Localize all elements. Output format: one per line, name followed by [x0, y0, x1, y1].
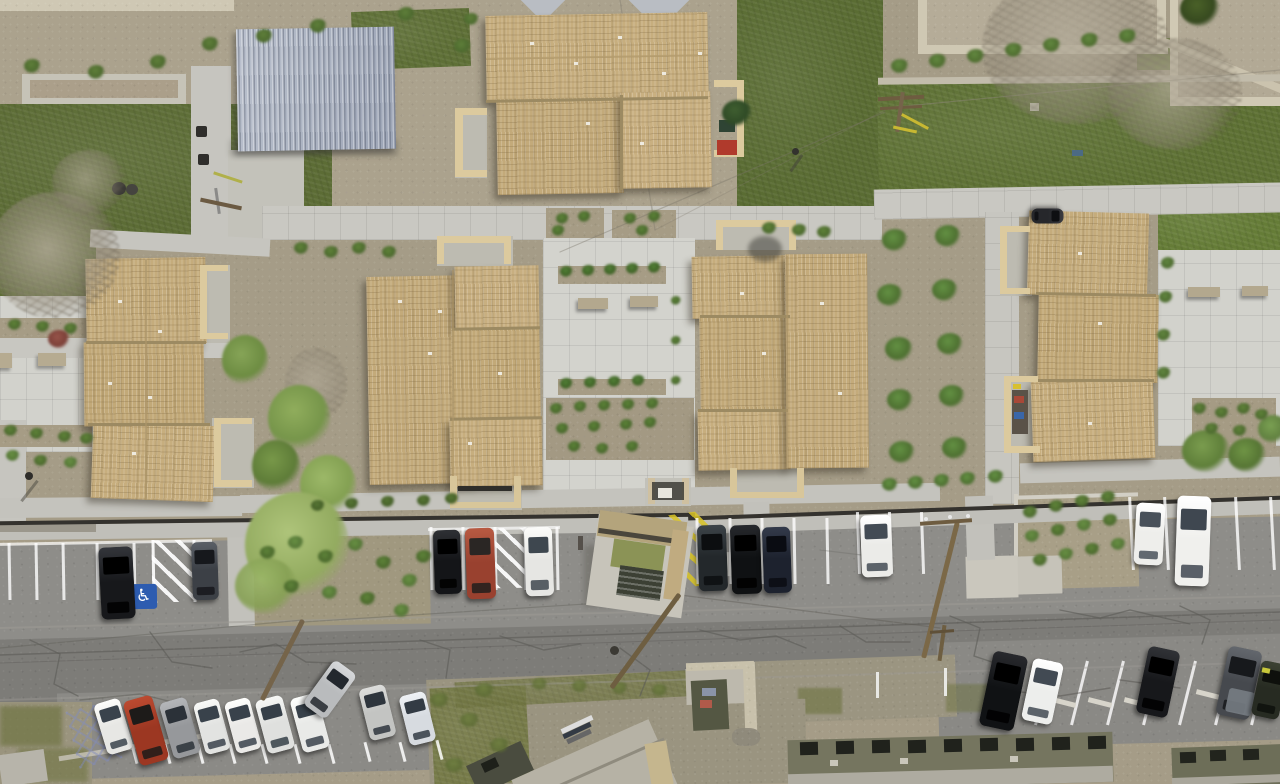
- courtyard-wall: [455, 170, 487, 177]
- pole-base: [610, 646, 619, 655]
- shrub: [671, 336, 681, 345]
- bare-tree: [1108, 38, 1242, 150]
- shrub: [1103, 514, 1118, 526]
- ac-unit: [1010, 756, 1018, 762]
- bench: [630, 296, 658, 307]
- tree-small: [887, 389, 913, 411]
- tree-small: [885, 337, 913, 361]
- roof-vent: [428, 352, 432, 355]
- shrub: [382, 246, 397, 258]
- car-rear-window: [305, 735, 325, 747]
- weed: [572, 680, 588, 692]
- shrub: [445, 493, 459, 504]
- shrub: [624, 213, 637, 224]
- shrub: [64, 457, 78, 468]
- aerial-photograph: ♿: [0, 0, 1280, 784]
- shrub: [150, 55, 167, 69]
- weed: [532, 678, 548, 690]
- shrub: [1049, 500, 1064, 512]
- shrub: [1043, 38, 1061, 52]
- courtyard-wall: [797, 468, 804, 498]
- shrub: [1159, 291, 1173, 303]
- shrub: [310, 19, 327, 33]
- shadow-blob: [748, 236, 782, 262]
- shrub: [608, 376, 621, 387]
- shrub: [1023, 506, 1038, 518]
- courtyard-wall: [716, 220, 796, 227]
- car-rear-window: [175, 741, 195, 754]
- shrub: [398, 7, 415, 21]
- stored-items: [1013, 384, 1021, 389]
- shrub: [882, 478, 898, 491]
- courtyard-wall: [1004, 376, 1011, 452]
- stored-items: [1014, 396, 1024, 403]
- courtyard-wall: [455, 108, 487, 115]
- bench: [1242, 286, 1268, 296]
- shrub: [1085, 543, 1100, 555]
- car-rear-window: [1027, 706, 1049, 719]
- shed-item: [702, 688, 716, 696]
- shrub: [671, 376, 681, 385]
- shrub: [1193, 403, 1207, 414]
- car-rear-window: [986, 709, 1011, 724]
- tree-small: [882, 229, 908, 251]
- roof-b-topright: [454, 265, 539, 330]
- tree-small: [935, 225, 961, 247]
- shrub: [574, 401, 587, 412]
- car-rear-window: [1256, 703, 1276, 715]
- courtyard-wall: [214, 418, 221, 486]
- car-rear-window: [737, 578, 757, 588]
- courtyard-wall: [214, 480, 252, 487]
- roof-vent: [820, 302, 824, 305]
- stored-items: [1014, 412, 1024, 419]
- shrub: [4, 425, 18, 436]
- car-rear-window: [867, 562, 888, 571]
- weed: [490, 738, 510, 752]
- courtyard-wall: [1004, 376, 1038, 382]
- weed: [445, 758, 465, 772]
- gate-dark: [458, 486, 512, 491]
- car-rear-window: [1180, 565, 1203, 578]
- shrub: [578, 211, 591, 222]
- car-white-van: [1174, 495, 1211, 586]
- shrub: [552, 225, 565, 236]
- car-windshield: [326, 667, 351, 690]
- shrub: [1081, 33, 1099, 47]
- courtyard-wall: [1004, 446, 1040, 453]
- shrub: [284, 580, 300, 593]
- ac-unit: [830, 760, 838, 766]
- weed: [652, 684, 668, 696]
- car-gray: [191, 542, 219, 601]
- stone-wall-top: [0, 0, 234, 11]
- gate-box: [658, 488, 672, 498]
- courtyard-wall: [200, 265, 228, 271]
- car-windshield: [993, 662, 1022, 685]
- car-rear-window: [472, 582, 491, 593]
- courtyard-wall: [214, 418, 252, 424]
- shrub: [1075, 495, 1090, 507]
- shrub: [6, 450, 20, 461]
- shrub: [604, 264, 617, 275]
- car-windshield: [164, 705, 188, 724]
- tree: [252, 440, 300, 492]
- roof-ridge: [452, 270, 454, 484]
- shrub: [908, 476, 924, 489]
- courtyard-wall: [1000, 226, 1007, 294]
- car-rear-window: [270, 736, 290, 748]
- tree-small: [942, 437, 968, 459]
- courtyard-wall: [514, 476, 521, 508]
- roof-b-midright: [451, 327, 541, 421]
- shrub: [626, 441, 639, 452]
- roof-vent: [108, 382, 112, 385]
- shrub: [891, 59, 909, 73]
- roof-vent: [498, 372, 502, 375]
- shrub: [1077, 519, 1092, 531]
- car-windshield: [734, 534, 757, 551]
- car-dark-suv: [697, 525, 728, 592]
- insulator: [966, 514, 970, 518]
- car-rear-window: [141, 745, 163, 759]
- car-black-suv: [730, 524, 762, 594]
- shrub: [1205, 423, 1219, 434]
- roof-vent-dark: [1052, 737, 1070, 750]
- shrub: [646, 398, 659, 409]
- car-windshield: [701, 534, 723, 551]
- courtyard-wall: [200, 265, 207, 339]
- bench: [38, 353, 66, 366]
- no-parking-hatch: [494, 528, 527, 589]
- shrub: [632, 375, 645, 386]
- car-windshield: [129, 704, 155, 726]
- roof-vent-dark: [1210, 750, 1226, 762]
- roof-vent-dark: [1016, 738, 1034, 751]
- roof-vent: [1098, 322, 1102, 325]
- car-windshield: [1228, 656, 1256, 678]
- roof-ridge: [786, 256, 788, 468]
- roof-vent: [530, 42, 534, 45]
- roof-vent-dark: [908, 740, 926, 753]
- car-white: [860, 514, 893, 577]
- car-rear-window: [768, 577, 787, 587]
- car-windshield: [469, 538, 491, 556]
- car-windshield: [229, 705, 251, 722]
- car-windshield: [766, 536, 787, 553]
- insulator: [948, 515, 952, 519]
- roof-d-mid: [1037, 293, 1159, 383]
- roof-vent: [1088, 422, 1092, 425]
- tree-small: [877, 284, 903, 306]
- roof-a-mid: [84, 341, 205, 426]
- shrub: [556, 213, 569, 224]
- shrub: [671, 296, 681, 305]
- roof-vent-dark: [1088, 736, 1106, 749]
- roof-vent: [398, 300, 402, 303]
- car-rear-window: [1142, 698, 1165, 712]
- car-red-truck: [465, 528, 496, 600]
- car-windshield: [1033, 667, 1059, 687]
- shrub: [36, 321, 50, 332]
- shrub: [568, 441, 581, 452]
- bare-tree: [52, 150, 126, 214]
- shrub: [34, 455, 48, 466]
- roof-a-bot: [91, 422, 216, 502]
- roof-vent-dark: [836, 741, 854, 754]
- kiosk-post: [578, 536, 583, 550]
- shrub: [394, 604, 410, 617]
- shrub: [80, 433, 94, 444]
- insulator: [924, 517, 928, 521]
- car-rear-window: [207, 738, 226, 750]
- shrub: [560, 378, 573, 389]
- no-parking-hatch: [151, 540, 196, 603]
- car-windshield: [363, 692, 385, 709]
- car-rear-window: [439, 579, 457, 589]
- courtyard-wall: [437, 236, 511, 243]
- tree-small: [937, 333, 963, 355]
- car-black: [433, 530, 462, 595]
- shrub: [1255, 409, 1269, 420]
- shrub: [256, 29, 273, 43]
- shrub: [1233, 425, 1247, 436]
- roof-eave: [1034, 379, 1154, 382]
- red-bush: [48, 330, 70, 348]
- shrub: [402, 574, 418, 587]
- courtyard-wall: [450, 502, 520, 508]
- courtyard-wall: [455, 108, 463, 176]
- roof-c-botleft: [697, 409, 790, 471]
- shrub: [311, 500, 325, 511]
- car-rear-window: [109, 738, 128, 750]
- roof-vent: [838, 392, 842, 395]
- light-pole: [792, 148, 799, 155]
- shrub: [648, 211, 661, 222]
- mailbox-dark: [616, 565, 664, 601]
- shrub: [1157, 329, 1171, 341]
- shrub: [550, 403, 563, 414]
- roof-vent: [586, 122, 590, 125]
- post-white: [876, 672, 879, 698]
- shrub: [8, 319, 22, 330]
- roof-vent: [618, 36, 622, 39]
- walk-corner: [0, 749, 48, 784]
- shrub: [1101, 491, 1116, 503]
- shrub: [88, 65, 105, 79]
- shrub: [960, 472, 976, 485]
- roof-vent-dark: [980, 738, 998, 751]
- car-windshield: [1051, 210, 1059, 221]
- shrub: [598, 400, 611, 411]
- car-windshield: [528, 536, 549, 553]
- shrub: [1005, 43, 1023, 57]
- shrub: [318, 550, 334, 563]
- shrub: [381, 496, 395, 507]
- car-windshield: [1139, 511, 1161, 527]
- roof-c-topleft: [691, 255, 790, 319]
- car-windshield: [403, 698, 425, 715]
- roof-vent: [762, 352, 766, 355]
- roof-eave: [698, 409, 788, 412]
- car-rear-window: [412, 730, 431, 741]
- roof-vent: [1078, 252, 1082, 255]
- courtyard-wall: [200, 333, 228, 339]
- car-dark-parked: [1032, 209, 1064, 224]
- car-rear-window: [238, 737, 257, 749]
- shrub: [345, 498, 359, 509]
- shrub: [929, 54, 947, 68]
- shrub: [588, 421, 601, 432]
- shrub: [454, 39, 471, 53]
- roof-c-right: [785, 254, 869, 469]
- shrub: [1237, 403, 1251, 414]
- grass-right-of-building: [737, 0, 883, 206]
- post-white: [944, 668, 947, 696]
- car-windshield: [260, 703, 283, 721]
- shed-item: [700, 700, 712, 708]
- shrub: [58, 431, 72, 442]
- shrub: [360, 592, 376, 605]
- roof-main-right: [620, 91, 712, 189]
- bench: [1188, 287, 1220, 297]
- shrub: [1059, 548, 1074, 560]
- courtyard-wall: [730, 492, 804, 498]
- walk: [191, 66, 231, 240]
- tree-small: [932, 279, 958, 301]
- shrub: [648, 262, 661, 273]
- car-black-truck: [98, 546, 136, 620]
- shrub: [596, 443, 609, 454]
- car-rear-window: [530, 580, 549, 590]
- car-windshield: [1148, 656, 1175, 677]
- roof-vent: [640, 142, 644, 145]
- stone-wall: [918, 0, 927, 54]
- car-windshield: [103, 556, 129, 575]
- roof-vent: [438, 310, 442, 313]
- shrub: [560, 266, 573, 277]
- shrub: [348, 538, 364, 551]
- roof-ridge: [620, 95, 623, 190]
- shrub: [636, 225, 649, 236]
- shrub: [817, 226, 832, 238]
- tree-small: [939, 385, 965, 407]
- car-windshield: [198, 706, 220, 723]
- shrub: [24, 59, 41, 73]
- dirt-bottom: [655, 699, 806, 784]
- car-rear-window: [197, 586, 214, 595]
- roof-vent: [698, 52, 702, 55]
- shrub: [352, 242, 367, 254]
- low-wall: [0, 524, 96, 532]
- car-rear-window: [1034, 211, 1038, 221]
- shrub: [376, 556, 392, 569]
- weed: [475, 683, 495, 697]
- car-windshield: [98, 705, 121, 723]
- roof-d-bot: [1031, 378, 1156, 462]
- car-windshield: [1181, 508, 1207, 530]
- shrub: [584, 377, 597, 388]
- roof-vent: [662, 72, 666, 75]
- car-windshield: [195, 550, 215, 565]
- weed: [430, 693, 450, 707]
- roof-vent-dark: [944, 739, 962, 752]
- shrub: [416, 550, 432, 563]
- roof-vent: [574, 62, 578, 65]
- roof-vent: [158, 330, 162, 333]
- bench: [0, 353, 12, 368]
- shrub: [464, 13, 479, 25]
- shrub: [1119, 29, 1137, 43]
- walk-ramp: [965, 555, 1018, 598]
- shrub: [762, 222, 777, 234]
- shrub: [294, 242, 309, 254]
- roof-vent: [740, 292, 744, 295]
- trash-bin: [196, 126, 207, 137]
- trash-bin: [198, 154, 209, 165]
- car-windshield: [864, 523, 887, 539]
- roof-eave: [700, 315, 790, 318]
- shrub: [988, 470, 1004, 483]
- tree-dark: [722, 100, 752, 126]
- rubble-pile: [732, 728, 760, 746]
- shrub: [792, 224, 807, 236]
- car-rear-window: [309, 696, 328, 713]
- shrub: [288, 536, 304, 549]
- grass-patch: [0, 706, 62, 746]
- shrub: [622, 399, 635, 410]
- car-rear-window: [1139, 550, 1159, 560]
- roof-vent: [132, 452, 136, 455]
- bench: [578, 298, 608, 309]
- roof-main-left: [496, 97, 624, 195]
- tree: [222, 335, 268, 385]
- shrub: [582, 265, 595, 276]
- roof-vent: [468, 442, 472, 445]
- shrub: [1033, 554, 1048, 566]
- shrub: [202, 37, 219, 51]
- shrub: [30, 428, 44, 439]
- shrub: [620, 419, 633, 430]
- car-rear-window: [704, 575, 723, 585]
- tree: [1182, 430, 1230, 472]
- weed: [460, 713, 480, 727]
- roof-vent: [118, 300, 122, 303]
- roof-d-top: [1027, 210, 1149, 297]
- roof-vent-dark: [1180, 752, 1196, 764]
- shrub: [260, 546, 276, 559]
- shrub: [556, 423, 569, 434]
- tree: [1228, 438, 1266, 472]
- roof-b-botright: [449, 417, 542, 487]
- field-object: [1072, 150, 1083, 156]
- tree-small: [889, 441, 915, 463]
- shed-wall: [743, 662, 757, 730]
- pavilion-roof: [236, 27, 396, 152]
- roof-c-midleft: [699, 315, 793, 413]
- roof-vent-dark: [872, 740, 890, 753]
- shrub: [934, 474, 950, 487]
- shrub: [1157, 367, 1171, 379]
- roof-vent-dark: [800, 742, 818, 755]
- car-darkblue: [762, 527, 792, 594]
- shrub: [967, 49, 985, 63]
- car-rear-window: [107, 602, 130, 613]
- roof-vent-dark: [1243, 749, 1259, 761]
- shrub: [1111, 538, 1126, 550]
- car-white-suv: [524, 527, 554, 597]
- shrub: [322, 586, 338, 599]
